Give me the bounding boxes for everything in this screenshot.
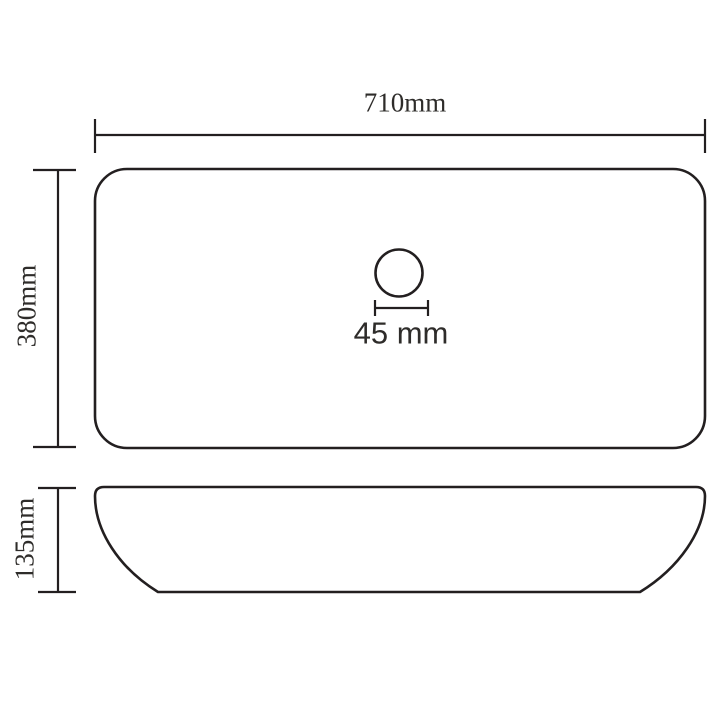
drain-diameter-label: 45 mm <box>354 318 449 349</box>
width-dimension-label: 710mm <box>364 90 447 117</box>
drain-hole-circle <box>376 250 423 297</box>
depth-dimension-label: 380mm <box>14 265 41 348</box>
height-dimension-label: 135mm <box>12 498 39 581</box>
side-view-outline <box>95 487 705 592</box>
drawing-canvas <box>0 0 720 720</box>
dimension-diagram: 710mm 380mm 135mm 45 mm <box>0 0 720 720</box>
